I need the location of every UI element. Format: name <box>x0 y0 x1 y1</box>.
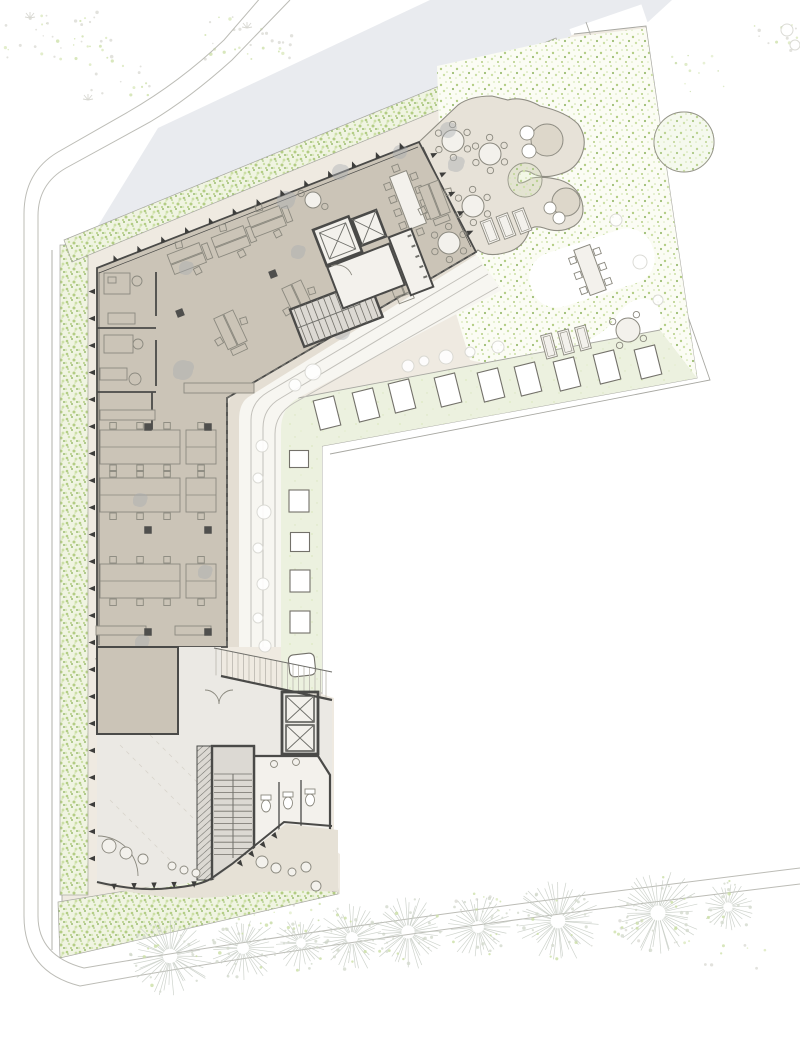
shrub <box>305 364 321 380</box>
shrub <box>253 613 263 623</box>
paver <box>291 533 310 552</box>
structural-column <box>144 423 152 431</box>
bench-desk <box>186 471 216 520</box>
pouf <box>120 847 132 859</box>
shrub <box>610 214 622 226</box>
pouf <box>288 868 296 876</box>
paver <box>289 490 309 512</box>
shrub <box>256 440 268 452</box>
planter-small <box>544 202 556 214</box>
structural-column <box>204 423 212 431</box>
pouf <box>256 856 268 868</box>
pouf <box>271 863 281 873</box>
bench-desk <box>186 557 216 606</box>
hedge-west <box>60 245 88 895</box>
planting-bed-tint <box>654 112 714 172</box>
shrub <box>257 505 271 519</box>
lounge-room <box>97 647 178 734</box>
garden-bench <box>288 653 316 678</box>
pouf <box>180 866 188 874</box>
shrub <box>781 24 793 36</box>
shrub <box>253 543 263 553</box>
paver <box>290 570 310 592</box>
bench-desk <box>100 423 180 472</box>
plan-canvas <box>0 0 800 1055</box>
pouf <box>192 869 200 877</box>
sideboard <box>184 383 254 393</box>
shrub <box>419 356 429 366</box>
pouf <box>138 854 148 864</box>
toilet <box>283 792 293 809</box>
planter-small <box>520 126 534 140</box>
shrub <box>289 379 301 391</box>
pouf <box>168 862 176 870</box>
pouf <box>311 881 321 891</box>
shrub <box>259 640 271 652</box>
structural-column <box>204 628 212 636</box>
planter-small <box>553 212 565 224</box>
toilet <box>305 789 315 806</box>
planter-small <box>522 144 536 158</box>
structural-column <box>144 628 152 636</box>
structural-column <box>144 526 152 534</box>
sideboard <box>96 626 146 635</box>
paver <box>290 611 310 633</box>
shrub <box>257 578 269 590</box>
pouf <box>301 862 311 872</box>
floor-plan-drawing <box>0 0 800 1055</box>
sideboard <box>100 410 155 420</box>
structural-column <box>204 526 212 534</box>
stair-void-hatch <box>197 746 212 880</box>
shrub <box>439 350 453 364</box>
pouf <box>102 839 116 853</box>
paver <box>290 451 309 468</box>
planter-circle <box>552 188 580 216</box>
toilet <box>261 795 271 812</box>
shrub <box>492 341 504 353</box>
shrub <box>653 295 663 305</box>
shrub <box>633 255 647 269</box>
planting-bed-tint <box>508 163 542 197</box>
shrub <box>253 473 263 483</box>
shrub <box>790 40 800 50</box>
shrub <box>465 347 475 357</box>
bench-desk <box>100 557 180 606</box>
shrub <box>402 360 414 372</box>
